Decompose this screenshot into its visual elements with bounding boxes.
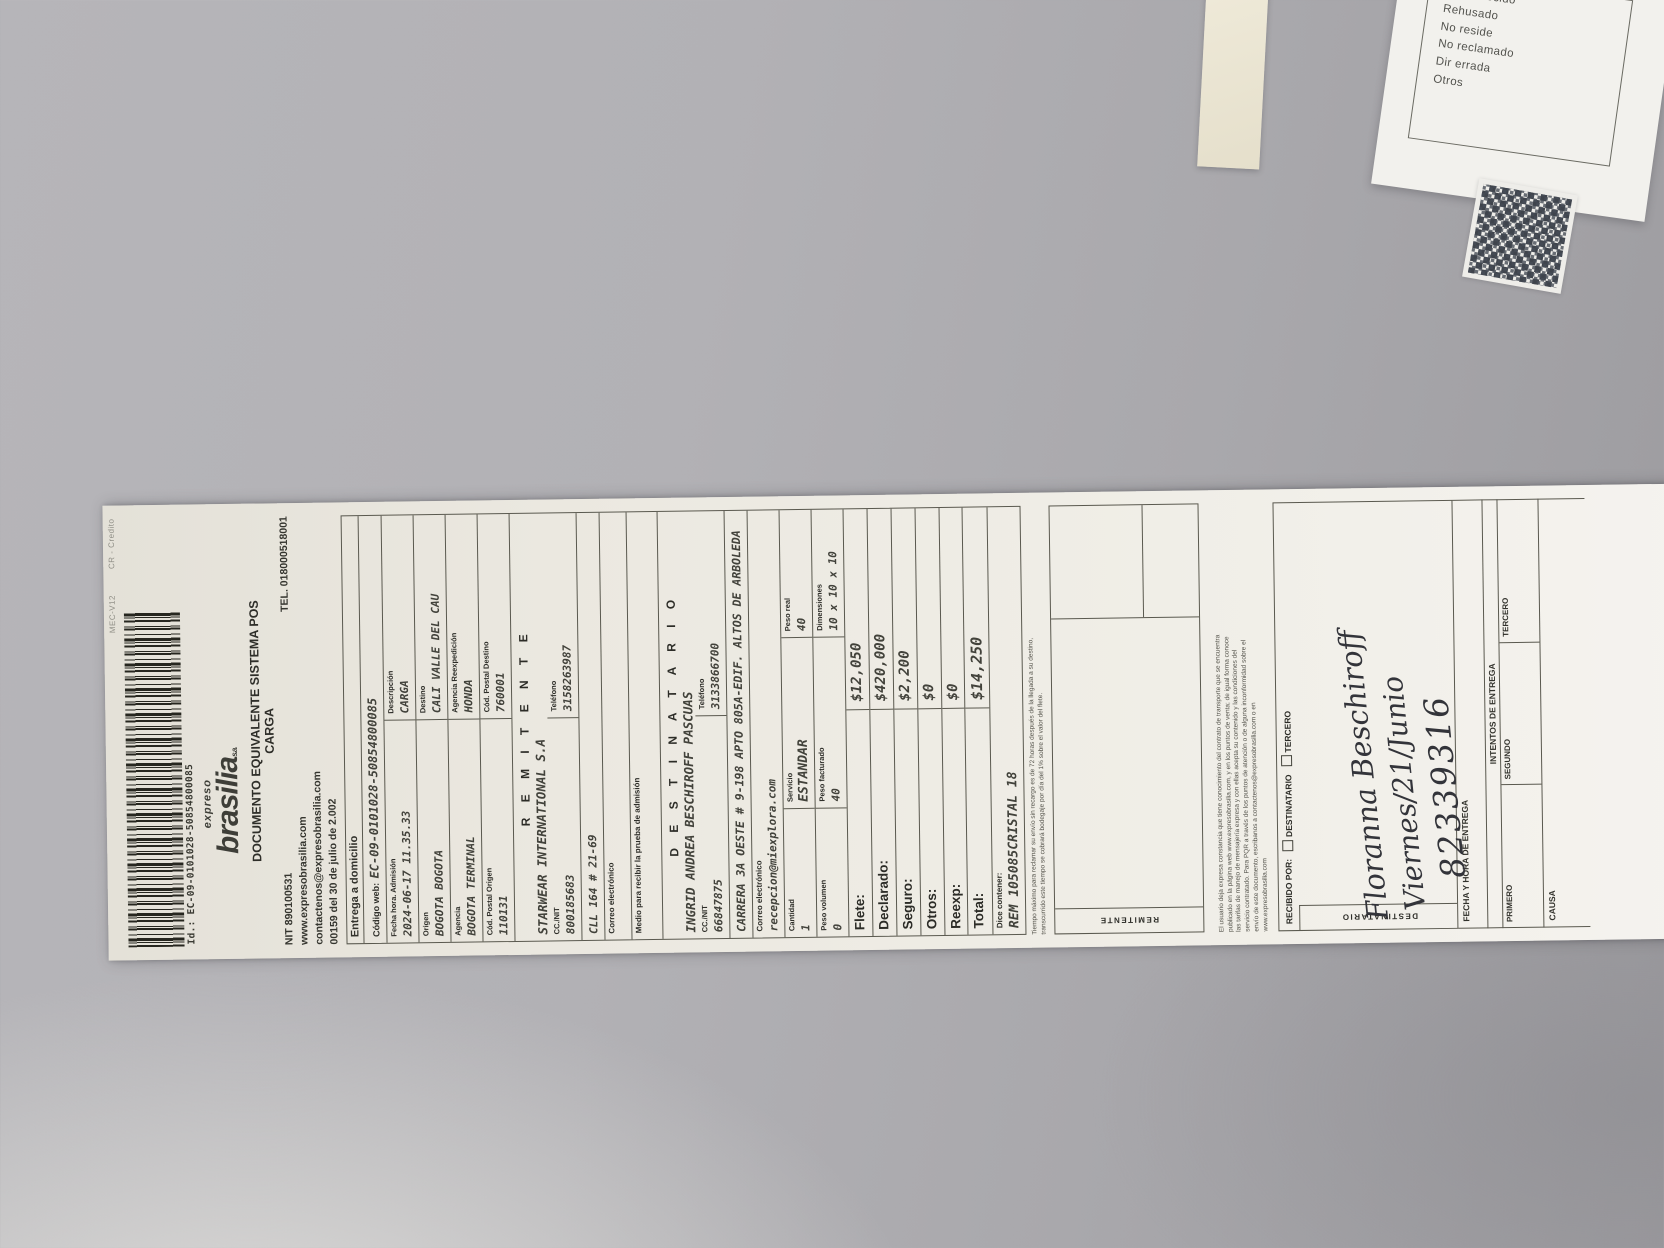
qr-pattern-fine xyxy=(1468,184,1572,288)
logo-suffix: s.a. xyxy=(230,747,239,756)
admision-label: Fecha hora. Admisión xyxy=(386,727,398,937)
reexp-label: Reexp: xyxy=(942,709,968,935)
remitente-tel-value: 3158263987 xyxy=(560,645,574,711)
cp-origen-value: 110131 xyxy=(497,895,511,935)
admision-value: 2024-06-17 11.35.33 xyxy=(399,811,414,937)
waybill-receipt: MEC-V12 CR - Credito Id.: EC-09-0101028-… xyxy=(102,483,1664,960)
cp-destino-value: 760001 xyxy=(494,672,508,712)
remitente-direccion: CLL 164 # 21-69 xyxy=(586,834,600,934)
descripcion-value: CARGA xyxy=(398,680,411,713)
remitente-signature-area xyxy=(1051,617,1203,908)
company-tel: TEL. 018000518001 xyxy=(277,516,290,612)
remitente-signature-row: REMITENTE xyxy=(1048,503,1204,934)
destinatario-correo-value: recepcion@miexplora.com xyxy=(766,779,781,931)
codigo-web-value: EC-09-0101028-50854800085 xyxy=(365,698,382,879)
remitente-signature-subcell xyxy=(1049,504,1199,619)
otros-label: Otros: xyxy=(918,710,944,936)
cp-origen-label: Cód. Postal Origen xyxy=(482,725,494,935)
peso-facturado-label: Peso facturado xyxy=(816,644,827,802)
fine-print-2: El usuario deja expresa constancia que t… xyxy=(1212,502,1271,932)
servicio-value: ESTANDAR xyxy=(796,739,812,802)
checkbox-tercero: TERCERO xyxy=(1281,711,1294,767)
return-reason-box: Desconocido Rehusado No reside No reclam… xyxy=(1408,0,1633,167)
agencia-label: Agencia xyxy=(450,726,462,936)
dice-contener-value: REM 105085CRISTAL 18 xyxy=(1005,771,1022,928)
payment-type: CR - Credito xyxy=(107,518,120,569)
barcode xyxy=(124,612,185,948)
intento-tercero: TERCERO xyxy=(1498,500,1540,643)
intentos-entrega-columns: PRIMERO SEGUNDO TERCERO xyxy=(1498,499,1545,929)
checkbox-tercero-icon xyxy=(1281,755,1292,766)
origen-value: BOGOTA BOGOTA xyxy=(432,850,446,936)
peso-real-label: Peso real xyxy=(782,516,793,631)
peso-real-value: 40 xyxy=(795,618,808,631)
destinatario-nit-value: 66847875 xyxy=(711,879,725,932)
declarado-value: $420,000 xyxy=(868,509,894,711)
prueba-admision-label: Medio para recibir la prueba de admisión xyxy=(628,518,643,933)
logo-brasilia: brasilias.a. xyxy=(210,517,245,854)
flete-label: Flete: xyxy=(847,711,873,937)
remitente-nit-label: CC./NIT xyxy=(549,724,561,934)
qr-code xyxy=(1462,178,1578,294)
seguro-label: Seguro: xyxy=(894,710,920,936)
destinatario-tel-value: 3133866700 xyxy=(708,643,722,709)
remitente-nit-value: 800185683 xyxy=(563,875,577,935)
peso-volumen-value: 0 xyxy=(832,924,845,931)
descripcion-label: Descripción xyxy=(383,522,395,714)
document-title: DOCUMENTO EQUIVALENTE SISTEMA POS CARGA xyxy=(246,516,281,945)
intento-segundo: SEGUNDO xyxy=(1500,642,1542,785)
checkbox-destinatario: DESTINATARIO xyxy=(1282,774,1295,851)
destino-label: Destino xyxy=(415,521,427,713)
origen-label: Origen xyxy=(418,726,430,936)
cp-destino-label: Cód. Postal Destino xyxy=(479,520,491,712)
causa-row: CAUSA xyxy=(1539,498,1591,928)
codigo-web-label: Código web: xyxy=(370,883,381,937)
destino-value: CALI VALLE DEL CAU xyxy=(428,594,443,713)
waybill-table: Entrega a domicilio Código web: EC-09-01… xyxy=(340,506,1027,944)
remitente-tel-label: Teléfono xyxy=(546,519,558,711)
destinatario-tel-label: Teléfono xyxy=(694,517,706,709)
dice-contener-row: Dice contener: REM 105085CRISTAL 18 xyxy=(988,507,1026,934)
agencia-value: BOGOTA TERMINAL xyxy=(464,836,478,936)
destinatario-correo-label: Correo electrónico xyxy=(749,517,764,932)
checkbox-destinatario-icon xyxy=(1283,840,1294,851)
agencia-reexpedicion-label: Agencia Reexpedición xyxy=(447,521,459,713)
flete-value: $12,050 xyxy=(844,509,870,711)
peso-volumen-label: Peso volumen xyxy=(818,815,829,931)
total-value: $14,250 xyxy=(963,507,990,709)
dice-contener-label: Dice contener: xyxy=(990,513,1005,928)
reexp-value: $0 xyxy=(939,508,965,710)
resolution-line: 00159 del 30 de julio de 2.002 xyxy=(322,515,340,944)
sticky-note xyxy=(1197,0,1269,169)
servicio-label: Servicio xyxy=(784,644,795,802)
dimensiones-value: 10 x 10 x 10 xyxy=(826,551,840,631)
declarado-label: Declarado: xyxy=(870,710,896,936)
otros-value: $0 xyxy=(915,508,941,710)
recibido-por-label: RECIBIDO POR: xyxy=(1284,859,1295,924)
cantidad-label: Cantidad xyxy=(786,815,797,931)
receipt-meta-row: MEC-V12 CR - Credito xyxy=(107,518,125,947)
terminal-code: MEC-V12 xyxy=(108,595,121,633)
peso-facturado-value: 40 xyxy=(830,788,843,801)
destinatario-nit-label: CC./NIT xyxy=(697,722,709,932)
remitente-correo-label: Correo electrónico xyxy=(601,519,616,934)
remitente-signature-label: REMITENTE xyxy=(1099,915,1159,925)
destinatario-direccion: CARRERA 3A OESTE # 9-198 APTO 805A-EDIF.… xyxy=(729,530,749,932)
agencia-reexpedicion-value: HONDA xyxy=(462,679,475,712)
fine-print-1: Tiempo máximo para reclamar su envío sin… xyxy=(1026,506,1050,935)
company-nit: NIT 890100531 xyxy=(282,873,295,946)
seguro-value: $2,200 xyxy=(891,508,917,710)
company-logo: expreso brasilias.a. xyxy=(199,517,246,947)
cantidad-value: 1 xyxy=(800,924,813,931)
intento-primero: PRIMERO xyxy=(1502,785,1544,927)
total-label: Total: xyxy=(966,709,993,935)
dimensiones-label: Dimensiones xyxy=(814,516,825,631)
